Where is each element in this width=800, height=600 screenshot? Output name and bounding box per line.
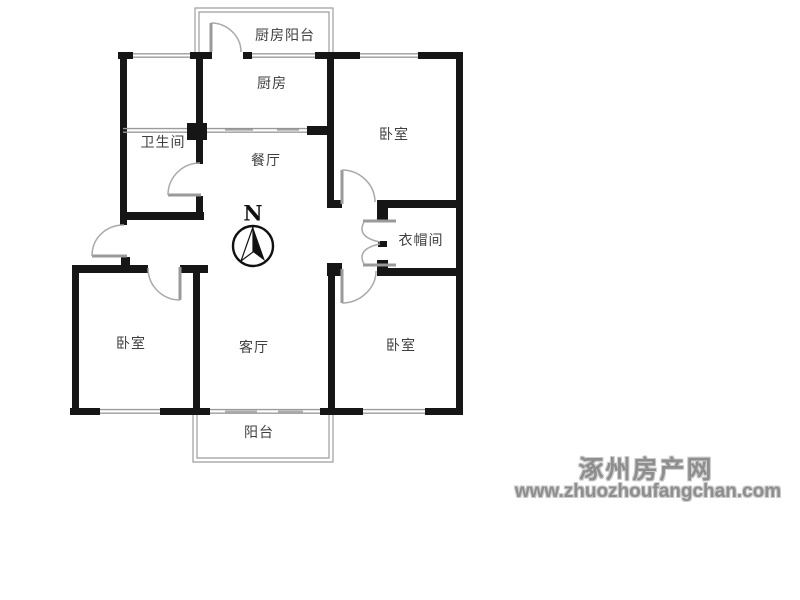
watermark-site-url: www.zhuozhoufangchan.com <box>515 481 781 503</box>
floor-plan-graphic <box>0 0 800 600</box>
compass-north-label: N <box>243 201 262 226</box>
room-label-balcony: 阳台 <box>244 422 274 442</box>
north-compass-icon <box>233 226 273 266</box>
room-label-dining-room: 餐厅 <box>251 150 281 170</box>
room-label-bathroom: 卫生间 <box>141 132 186 152</box>
room-label-kitchen-balcony: 厨房阳台 <box>255 25 315 45</box>
room-label-cloakroom: 衣帽间 <box>399 230 444 250</box>
room-label-bedroom-top-right: 卧室 <box>379 124 409 144</box>
room-label-living-room: 客厅 <box>239 337 269 357</box>
room-label-bedroom-bottom-right: 卧室 <box>386 335 416 355</box>
room-label-bedroom-bottom-left: 卧室 <box>116 333 146 353</box>
floor-plan-canvas: 厨房阳台 厨房 卫生间 餐厅 卧室 衣帽间 卧室 客厅 卧室 阳台 N 涿州房产… <box>0 0 800 600</box>
room-label-kitchen: 厨房 <box>257 73 287 93</box>
